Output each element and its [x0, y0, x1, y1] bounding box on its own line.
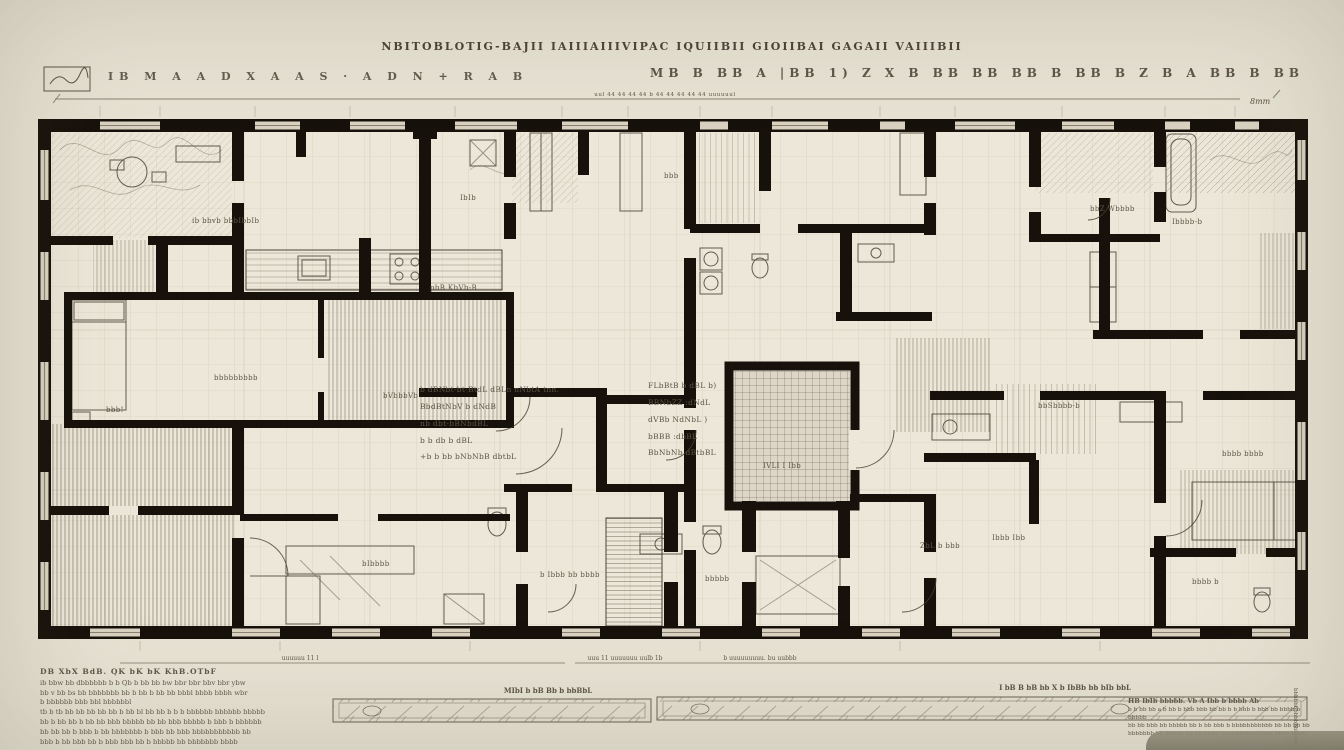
- plan-label: Ibbb Ibb: [992, 534, 1025, 542]
- center-note-line: BBNbZZ :dNdL: [648, 398, 710, 407]
- notes-line: bb b bb bb b bb bb bbb bbbbb bb bb bbb b…: [40, 718, 545, 728]
- plan-label: bbbb bbbb: [1222, 450, 1264, 458]
- scale-note: 8mm: [1250, 97, 1271, 106]
- plan-label: ib bbvb bbbIbbIb: [192, 217, 260, 225]
- floor-plan-drawing: ib bbvb bbbIbbIb IbIb pbB KbVb-B bbb! bV…: [0, 0, 1344, 750]
- notes-line: tb b tb bb bb bb bb bb b bb bl bb bb b b…: [40, 708, 545, 718]
- shaft: [729, 366, 860, 506]
- notes-line: bb v bb bs bb bbbbbbb bb b bb b bb bb bb…: [40, 689, 545, 699]
- plan-label: bbbb b: [1192, 578, 1219, 586]
- notes-block-left: DB XbX BdB. QK bK bK KhB.OTbF ib bbw bb …: [40, 667, 545, 747]
- plan-label: bbbbb: [705, 575, 730, 583]
- bottom-dim-text: b uuuuuuuuu. bu uubbb: [723, 655, 796, 662]
- notes-line: bbb b bb bbb bb b bbb bbb bb b bbbbb bb …: [40, 738, 545, 748]
- plan-label: b Ibbb bb bbbb: [540, 571, 600, 579]
- notes-left-heading: DB XbX BdB. QK bK bK KhB.OTbF: [40, 667, 545, 677]
- plan-label: ZbL b bbb: [920, 542, 960, 550]
- title-block-mark: [44, 67, 90, 91]
- notes-line: bb bb bb b bbb b bb bbbbbbb b bbb bb bbb…: [40, 728, 545, 738]
- blueprint-sheet: ib bbvb bbbIbbIb IbIb pbB KbVb-B bbb! bV…: [0, 0, 1344, 750]
- sheet-title: NBITOBLOTIG-BAJII IAIIIAIIIVIPAC IQUIIBI…: [0, 40, 1344, 54]
- plan-label: bbSbbbb-b: [1038, 402, 1080, 410]
- center-note-line: BbdBtNbV b dNdB: [420, 402, 496, 411]
- plan-label: Ibbbb-b: [1172, 218, 1202, 226]
- center-note-line: dVBb NdNbL ): [648, 415, 708, 424]
- header-right-marks: MB B BB A |BB 1) Z X B BB BB BB B BB B Z…: [650, 66, 1304, 80]
- center-note-line: b dBNbt-bt-BtdL dBLn nNbtA tnn.: [420, 385, 559, 394]
- notes-line: ib bbw bb dbbbbbb b b Qb b bb bb bw bbr …: [40, 679, 545, 689]
- notes-line: b b bb bb a b bb b bbb bbb bb bb b b bbb…: [1128, 706, 1318, 722]
- bottom-dim-text: uuuuuu 11 l: [282, 655, 319, 662]
- center-note-line: b b db b dBL: [420, 436, 472, 445]
- paper-corner-shadow: [1146, 731, 1344, 750]
- center-note-line: FLbBtB b dBL b): [648, 381, 717, 390]
- plan-label: bbbbbbbbb: [214, 374, 258, 382]
- plan-label: bbZ Wbbbb: [1090, 205, 1135, 213]
- notes-line: b bbbbbb bbb bbl bbbbbbl: [40, 698, 545, 708]
- center-note-line: +b b bb bNbNbB dbtbL: [420, 452, 516, 461]
- plan-label: pbB KbVb-B: [430, 284, 477, 292]
- plan-label: bVbbbVb: [383, 392, 418, 400]
- center-note-line: bBBB :dbBL: [648, 432, 697, 441]
- plan-label: bbb!: [106, 406, 124, 414]
- plan-label: bIbbbb: [362, 560, 390, 568]
- bottom-dimension-lines: uuuuuu 11 l uuu 11 uuuuuuu uulb 1b b uuu…: [120, 655, 1310, 663]
- plan-label: IbIb: [460, 194, 476, 202]
- bottom-dim-text: uuu 11 uuuuuuu uulb 1b: [587, 655, 662, 662]
- plan-label: bbb: [664, 172, 679, 180]
- plan-label: IVLI I Ibb: [763, 462, 801, 470]
- notes-line: bb bb bbb bb bbbbb bb b bb bbb b bbbbbbb…: [1128, 722, 1318, 730]
- header-left-marks: IB M A A D X A A S · A D N + R A B: [108, 70, 528, 83]
- top-dimension-text: uul 44 44 44 44 b 44 44 44 44 44 uuuuuul: [594, 92, 736, 98]
- center-note-line: BbNbNb dBtbBL: [648, 448, 716, 457]
- center-note-line: nb dbt-bBNbdBL: [420, 419, 488, 428]
- scale-bar-b-label: I bB B bB bb X b IbBb bb bIb bbL: [999, 683, 1131, 692]
- notes-right-heading: HB IbIb bbbbb. Vb A Ibb b bbbb Ab: [1128, 697, 1318, 705]
